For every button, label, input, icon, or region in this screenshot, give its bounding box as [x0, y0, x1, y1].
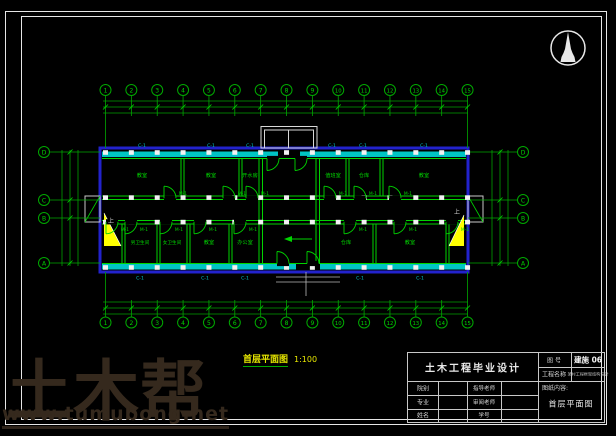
room-label: 教室 — [419, 171, 429, 179]
plan-caption-scale: 1:100 — [294, 355, 317, 364]
column-marker — [232, 150, 237, 155]
tb-divider — [408, 409, 538, 410]
window-tag: C-1 — [138, 143, 146, 149]
axis-label: 5 — [207, 87, 211, 94]
column-marker — [103, 195, 108, 200]
door-tag: M-1 — [175, 227, 183, 233]
column-marker — [387, 150, 392, 155]
column-marker — [465, 220, 470, 225]
door-tag: M-1 — [249, 227, 257, 233]
axis-label: A — [42, 260, 47, 267]
column-marker — [387, 265, 392, 270]
door-opening — [194, 219, 206, 224]
tb-divider — [501, 381, 502, 422]
column-marker — [439, 265, 444, 270]
field-label: 姓名 — [417, 411, 429, 420]
column-marker — [206, 220, 211, 225]
column-marker — [465, 195, 470, 200]
axis-label: 6 — [233, 320, 237, 327]
axis-label: 14 — [438, 321, 445, 327]
window-tag: C-1 — [420, 143, 428, 149]
column-marker — [155, 220, 160, 225]
door-opening — [295, 156, 307, 161]
axis-label: 3 — [155, 87, 159, 94]
door-tag: M-1 — [179, 191, 187, 197]
column-marker — [465, 150, 470, 155]
axis-label: B — [42, 215, 46, 222]
column-marker — [336, 150, 341, 155]
drawing-no-label: 图 号 — [547, 356, 561, 365]
column-marker — [439, 195, 444, 200]
column-marker — [181, 220, 186, 225]
door-opening — [446, 219, 458, 224]
window-tag: C-1 — [207, 143, 215, 149]
axis-label: 9 — [310, 87, 314, 94]
axis-label: 13 — [412, 321, 419, 327]
field-label: 专业 — [417, 397, 429, 406]
room-label: 办公室 — [237, 238, 253, 246]
field-label: 院别 — [417, 384, 429, 393]
room-label: 教室 — [137, 171, 147, 179]
axis-label: 15 — [464, 88, 471, 94]
cad-drawing: 1234567891011121314151234567891011121314… — [0, 0, 616, 436]
door-opening — [125, 219, 137, 224]
axis-label: 14 — [438, 88, 445, 94]
axis-label: 8 — [285, 87, 289, 94]
title-block: 土木工程毕业设计 图 号 建施 06 工程名称 某村工程框架结构设计 图纸内容:… — [407, 352, 605, 423]
column-marker — [284, 195, 289, 200]
column-marker — [103, 150, 108, 155]
watermark-url: www.tumubong.net — [2, 403, 229, 429]
door-tag: M-1 — [404, 191, 412, 197]
column-marker — [336, 265, 341, 270]
door-tag: M-1 — [359, 227, 367, 233]
axis-label: 4 — [181, 87, 185, 94]
column-marker — [362, 220, 367, 225]
door-tag: M-1 — [409, 227, 417, 233]
door-opening — [160, 219, 172, 224]
column-marker — [181, 150, 186, 155]
window-tag: C-1 — [246, 143, 254, 149]
room-label: 仓库 — [359, 171, 369, 179]
tb-divider — [538, 353, 539, 422]
door-opening — [164, 196, 176, 201]
entrance-porch — [261, 127, 317, 149]
window-tag: C-1 — [359, 143, 367, 149]
axis-label: 5 — [207, 320, 211, 327]
content-label: 图纸内容: — [542, 383, 568, 392]
door-opening — [324, 196, 336, 201]
door-tag: M-1 — [369, 191, 377, 197]
column-marker — [258, 265, 263, 270]
axis-label: 9 — [310, 320, 314, 327]
axis-label: 10 — [335, 88, 342, 94]
axis-label: 4 — [181, 320, 185, 327]
axis-label: A — [521, 260, 526, 267]
door-opening — [394, 219, 406, 224]
axis-label: 8 — [285, 320, 289, 327]
axis-label: B — [521, 215, 525, 222]
column-marker — [258, 220, 263, 225]
axis-label: D — [42, 149, 47, 156]
axis-label: D — [521, 149, 526, 156]
walls — [102, 159, 466, 264]
column-marker — [387, 220, 392, 225]
door-opening — [277, 261, 289, 266]
window-tag: C-1 — [241, 276, 249, 282]
axis-label: 10 — [335, 321, 342, 327]
axis-label: 7 — [259, 87, 263, 94]
window-tag: C-1 — [356, 276, 364, 282]
column-marker — [413, 150, 418, 155]
column-marker — [284, 220, 289, 225]
column-marker — [413, 195, 418, 200]
door-opening — [234, 219, 246, 224]
walkline-arrow — [284, 236, 312, 242]
column-marker — [310, 150, 315, 155]
door-opening — [223, 196, 235, 201]
room-label: 值班室 — [325, 171, 341, 179]
room-label: 仓库 — [341, 238, 351, 246]
axis-label: C — [42, 197, 46, 204]
column-marker — [362, 265, 367, 270]
axis-label: 15 — [464, 321, 471, 327]
tb-divider — [408, 395, 538, 396]
project-title: 土木工程毕业设计 — [425, 360, 521, 375]
room-label: 教室 — [206, 171, 216, 179]
axis-label: 11 — [361, 321, 368, 327]
axis-label: 3 — [155, 320, 159, 327]
column-marker — [465, 265, 470, 270]
column-marker — [129, 265, 134, 270]
column-marker — [181, 265, 186, 270]
door-tag: M-1 — [261, 191, 269, 197]
column-marker — [310, 195, 315, 200]
column-marker — [206, 265, 211, 270]
plan-caption-title: 首层平面图 — [243, 355, 288, 367]
project-name-label: 工程名称 — [542, 370, 566, 379]
door-opening — [246, 196, 258, 201]
axis-label: 2 — [129, 87, 133, 94]
room-label: 教室 — [405, 238, 415, 246]
door-opening — [307, 261, 319, 266]
axis-label: 1 — [104, 320, 108, 327]
axis-label: 2 — [129, 320, 133, 327]
window-tag: C-1 — [328, 143, 336, 149]
door-tag: M-1 — [238, 191, 246, 197]
tb-divider — [467, 381, 468, 422]
north-arrow-icon — [551, 31, 585, 65]
field-label: 审阅老师 — [473, 398, 495, 406]
column-marker — [439, 220, 444, 225]
column-marker — [129, 195, 134, 200]
column-marker — [129, 150, 134, 155]
axis-label: 7 — [259, 320, 263, 327]
field-label: 学号 — [478, 411, 489, 419]
plan-caption: 首层平面图1:100 — [243, 347, 317, 366]
window-tag: C-1 — [136, 276, 144, 282]
column-marker — [439, 150, 444, 155]
window-tag: C-1 — [201, 276, 209, 282]
column-marker — [336, 220, 341, 225]
column-marker — [155, 150, 160, 155]
axis-label: 13 — [412, 88, 419, 94]
tb-divider — [438, 381, 439, 422]
up-label: 上 — [454, 208, 460, 216]
door-tag: M-1 — [140, 227, 148, 233]
door-opening — [354, 196, 366, 201]
column-marker — [258, 150, 263, 155]
project-name: 某村工程框架结构设计 — [568, 371, 609, 377]
door-opening — [389, 196, 401, 201]
column-marker — [155, 195, 160, 200]
entrance-steps — [276, 272, 340, 296]
column-marker — [206, 195, 211, 200]
door-opening — [344, 219, 356, 224]
column-marker — [310, 220, 315, 225]
door-opening — [267, 156, 279, 161]
column-marker — [413, 220, 418, 225]
column-marker — [232, 265, 237, 270]
axis-label: 1 — [104, 87, 108, 94]
axis-label: 11 — [361, 88, 368, 94]
door-tag: M-1 — [209, 227, 217, 233]
up-label: 上 — [108, 217, 114, 225]
room-label: 开水房 — [242, 171, 258, 179]
column-marker — [103, 265, 108, 270]
room-label: 女卫生间 — [163, 239, 182, 246]
drawing-no: 建施 06 — [574, 355, 602, 366]
door-tag: M-1 — [339, 191, 347, 197]
column-marker — [284, 150, 289, 155]
field-label: 指导老师 — [473, 384, 495, 392]
drawing-content: 首层平面图 — [549, 399, 594, 410]
room-label: 教室 — [204, 238, 214, 246]
column-marker — [155, 265, 160, 270]
axis-label: 6 — [233, 87, 237, 94]
door-tag: M-1 — [461, 227, 469, 233]
column-marker — [362, 150, 367, 155]
axis-label: 12 — [387, 321, 394, 327]
column-marker — [206, 150, 211, 155]
room-label: 男卫生间 — [131, 239, 150, 246]
window-tag: C-1 — [416, 276, 424, 282]
axis-label: 12 — [387, 88, 394, 94]
column-marker — [413, 265, 418, 270]
axis-label: C — [521, 197, 525, 204]
